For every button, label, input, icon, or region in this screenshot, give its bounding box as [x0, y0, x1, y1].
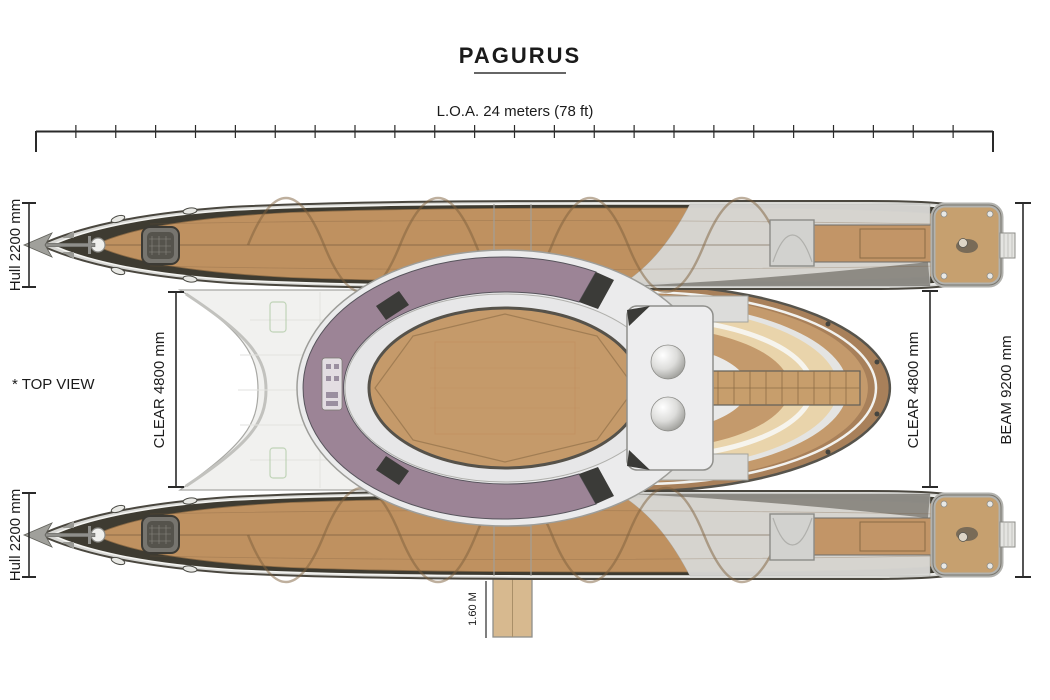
radar-dome [651, 345, 685, 379]
top-view-label: * TOP VIEW [12, 376, 95, 393]
beam-dimension [1015, 203, 1031, 577]
clear-port-dimension [168, 292, 184, 487]
hull-bottom-label: Hull 2200 mm [7, 489, 24, 582]
stern-gangway-bridge [702, 371, 860, 405]
clear-port-label: CLEAR 4800 mm [151, 332, 168, 449]
gangway-label: 1.60 M [467, 592, 479, 626]
loa-dimension [36, 125, 993, 152]
loa-label: L.O.A. 24 meters (78 ft) [437, 103, 594, 120]
drawing-sheet: PAGURUS L.O.A. 24 meters (78 ft) Hull 22… [0, 0, 1050, 700]
clear-starboard-label: CLEAR 4800 mm [905, 332, 922, 449]
radar-dome [651, 397, 685, 431]
boat-plan-svg: PAGURUS L.O.A. 24 meters (78 ft) Hull 22… [0, 0, 1050, 700]
helm-structure [627, 306, 713, 470]
hull-top-label: Hull 2200 mm [7, 199, 24, 292]
clear-starboard-dimension [922, 291, 938, 487]
beam-label: BEAM 9200 mm [998, 335, 1015, 444]
drawing-title: PAGURUS [459, 43, 581, 68]
